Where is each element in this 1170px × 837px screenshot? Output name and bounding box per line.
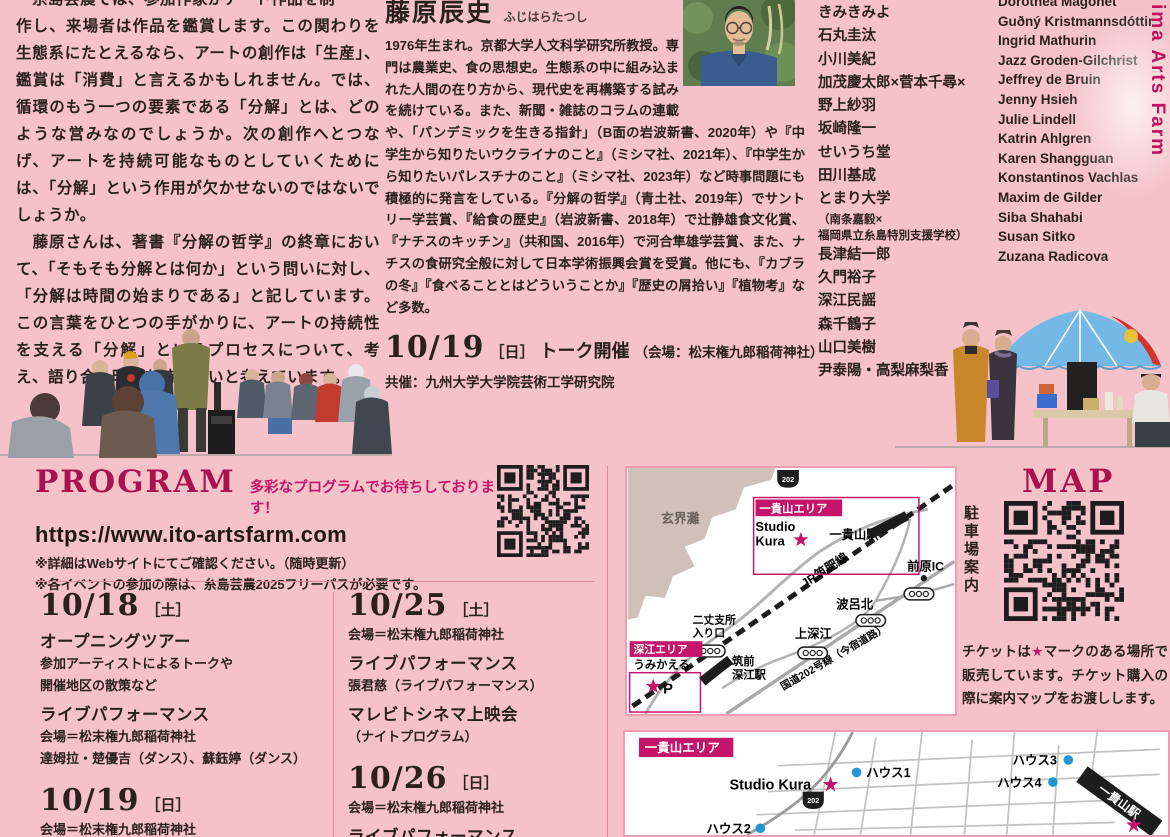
intro-line-clipped: 糸島芸農では、参加作家がアート作品を制 <box>16 0 380 13</box>
interchange-icon <box>904 588 934 600</box>
event-item-title: ライブパフォーマンス <box>348 650 603 674</box>
artist-name-jp: とまり大学 <box>818 188 998 211</box>
event-date: 10/25 <box>348 588 447 623</box>
event-item-line: 張君慈（ライブパフォーマンス） <box>348 676 603 696</box>
event-item-title: オープニングツアー <box>40 628 330 652</box>
jr-line-label: JR筑肥線 <box>798 549 851 591</box>
program-events-column-1: 10/18［土］ オープニングツアー 参加アーティストによるトークや 開催地区の… <box>40 588 330 837</box>
nijo-label-2: 入り口 <box>692 626 725 639</box>
talk-venue: （会場：松末権九郎稲荷神社） <box>634 341 823 361</box>
flyer-page: 糸島芸農では、参加作家がアート作品を制 作し、来場者は作品を鑑賞します。この関わ… <box>0 0 1170 837</box>
chikuzen-fukae-label-1: 筑前 <box>732 654 755 668</box>
artist-name-en: Zuzana Radicova <box>998 247 1168 267</box>
parking-guide-label: 駐車場案内 <box>960 505 981 635</box>
house2-dot <box>755 823 765 833</box>
artist-name-en: Dorothea Magonet <box>998 0 1168 12</box>
chikuzen-fukae-label-2: 深江駅 <box>732 668 767 682</box>
interchange-icon <box>856 615 886 627</box>
event-1025: 10/25［土］ 会場＝松末権九郎稲荷神社 ライブパフォーマンス 張君慈（ライブ… <box>348 588 603 747</box>
event-venue: 会場＝松末権九郎稲荷神社 <box>40 820 330 837</box>
program-url-link[interactable]: https://www.ito-artsfarm.com <box>35 522 347 548</box>
event-1019: 10/19［日］ 会場＝松末権九郎稲荷神社 芸農トークゲスト：藤原辰史 <box>40 783 330 837</box>
house4-dot <box>1048 777 1058 787</box>
artist-name-jp: せいうち堂 <box>818 142 998 165</box>
harokita-label: 波呂北 <box>836 597 874 612</box>
ikisan-area-label: 一貴山エリア <box>760 501 828 515</box>
speaker-furigana: ふじはらたつし <box>503 10 587 24</box>
column-divider-2 <box>607 466 608 837</box>
studio-kura-label-2: Kura <box>756 534 786 549</box>
artist-name-jp: 田川基成 <box>818 165 998 188</box>
interchange-icon <box>798 647 828 659</box>
visitor-woman-ochre <box>953 322 989 442</box>
event-item-line: 会場＝松末権九郎稲荷神社 <box>40 727 330 747</box>
program-tagline: 多彩なプログラムでお待ちしております！ <box>250 476 495 518</box>
event-item-line: 開催地区の散策など <box>40 676 330 696</box>
gathering-photo <box>0 322 392 458</box>
chikuzen-fukae-station-bar <box>699 656 733 686</box>
studio-kura-label: Studio Kura <box>729 778 812 794</box>
maebaru-ic-label: 前原IC <box>907 558 944 573</box>
umikaeru-label: うみかえる <box>634 659 690 672</box>
artist-name-jp: 石丸圭汰 <box>818 25 998 48</box>
parking-p-label: P <box>663 681 673 697</box>
artist-name-jp: きみきみよ <box>818 2 998 25</box>
event-1018: 10/18［土］ オープニングツアー 参加アーティストによるトークや 開催地区の… <box>40 588 330 769</box>
stall-table <box>1033 362 1143 447</box>
event-day: ［日］ <box>145 794 190 815</box>
artist-name-en: Susan Sitko <box>998 227 1168 247</box>
artist-name-jp: 加茂慶太郎×菅本千尋× <box>818 72 998 95</box>
ticket-star-icon: ★ <box>1031 644 1043 659</box>
house4-label: ハウス4 <box>997 776 1042 790</box>
house1-label: ハウス1 <box>866 766 911 780</box>
sea-label: 玄界灘 <box>661 511 700 526</box>
talk-date: 10/19 <box>385 330 484 365</box>
ticket-note: チケットは★マークのある場所で販売しています。チケット購入の際に案内マップをお渡… <box>962 640 1168 711</box>
svg-text:202: 202 <box>782 475 794 484</box>
artist-name-jp: 福岡県立糸島特別支援学校） <box>818 228 998 244</box>
area-overview-map: 玄界灘 JR筑肥線 国道202号線（今宿道路） 202 一貴山エリア Studi… <box>625 466 957 716</box>
event-date: 10/19 <box>40 783 139 818</box>
talk-line: 10/19 ［日］ トーク開催 （会場：松末権九郎稲荷神社） <box>385 330 815 365</box>
house3-dot <box>1064 755 1074 765</box>
talk-day: ［日］ <box>489 341 534 362</box>
intro-p1: 作し、来場者は作品を鑑賞します。この関わりを生態系にたとえるなら、アートの創作は… <box>16 13 380 229</box>
house3-label: ハウス3 <box>1012 754 1057 768</box>
vendor-man <box>1132 373 1170 447</box>
program-section-header: PROGRAM 多彩なプログラムでお待ちしております！ https://www.… <box>35 464 495 595</box>
maebaru-ic-dot <box>921 575 927 581</box>
event-item-title: ライブパフォーマンス <box>348 823 603 837</box>
market-stall-photo <box>895 302 1170 452</box>
event-day: ［土］ <box>145 599 190 620</box>
route-202-badge-icon: 202 <box>803 792 824 809</box>
festival-logo-vertical: ima Arts Farm <box>1146 4 1168 157</box>
fukae-area-label: 深江エリア <box>634 642 688 656</box>
talk-cohost: 共催：九州大学大学院芸術工学研究院 <box>385 371 815 391</box>
seated-people-right <box>237 364 392 454</box>
event-item-title: ライブパフォーマンス <box>40 701 330 725</box>
program-events-column-2: 10/25［土］ 会場＝松末権九郎稲荷神社 ライブパフォーマンス 張君慈（ライブ… <box>348 588 603 837</box>
ikisan-detail-map: 202 一貴山エリア Studio Kura ハウス1 ハウス3 ハウス4 ハウ… <box>623 730 1170 837</box>
event-item-title: マレビトシネマ上映会 <box>348 701 603 725</box>
stove <box>208 382 235 454</box>
artist-name-jp: 久門裕子 <box>818 267 998 290</box>
program-title: PROGRAM <box>35 464 236 500</box>
event-1026: 10/26［日］ 会場＝松末権九郎稲荷神社 ライブパフォーマンス 張君慈（ライブ… <box>348 761 603 837</box>
event-date: 10/18 <box>40 588 139 623</box>
speaker-name: 藤原辰史 <box>385 0 493 27</box>
map-section-title: MAP <box>1022 462 1115 500</box>
talk-title: トーク開催 <box>539 337 629 363</box>
route-202-road <box>726 561 954 714</box>
ticket-note-text: チケットは <box>962 644 1031 659</box>
house2-label: ハウス2 <box>706 822 751 835</box>
studio-kura-star-icon <box>793 532 808 546</box>
column-divider-1 <box>333 592 334 837</box>
event-venue: 会場＝松末権九郎稲荷神社 <box>348 625 603 645</box>
event-item-line: 参加アーティストによるトークや <box>40 654 330 674</box>
program-divider <box>35 581 595 582</box>
svg-text:202: 202 <box>807 796 819 805</box>
artist-name-jp: 長津結一郎 <box>818 244 998 267</box>
artist-name-jp: 坂崎隆一 <box>818 118 998 141</box>
event-item-line: 達姆拉・楚優吉（ダンス）、蘇鈺婷（ダンス） <box>40 749 330 769</box>
house1-dot <box>852 768 862 778</box>
event-venue: 会場＝松末権九郎稲荷神社 <box>348 798 603 818</box>
program-note-1: ※詳細はWebサイトにてご確認ください。（随時更新） <box>35 553 495 574</box>
event-date: 10/26 <box>348 761 447 796</box>
artist-name-en: Siba Shahabi <box>998 208 1168 228</box>
program-qr-code-icon <box>497 465 589 557</box>
artist-name-jp: 小川美紀 <box>818 49 998 72</box>
kamifukae-label: 上深江 <box>795 626 833 641</box>
artist-name-jp: 野上紗羽 <box>818 95 998 118</box>
talk-event: 10/19 ［日］ トーク開催 （会場：松末権九郎稲荷神社） 共催：九州大学大学… <box>385 330 815 391</box>
map-qr-code-icon <box>1004 501 1124 621</box>
area-label: 一貴山エリア <box>645 740 720 755</box>
event-item-line: （ナイトプログラム） <box>348 727 603 747</box>
event-day: ［日］ <box>453 772 498 793</box>
nijo-label-1: 二丈支所 <box>693 612 736 626</box>
speaker-portrait-photo <box>683 0 795 86</box>
event-day: ［土］ <box>453 599 498 620</box>
studio-kura-label-1: Studio <box>756 519 796 534</box>
route-202-badge-icon: 202 <box>777 470 799 488</box>
artist-name-jp: （南条嘉毅× <box>818 212 998 228</box>
